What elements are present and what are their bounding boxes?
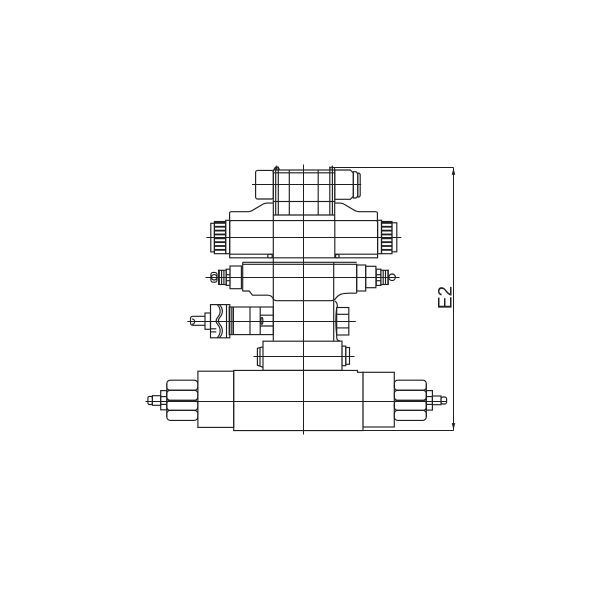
svg-text:E2: E2 [435, 286, 456, 309]
